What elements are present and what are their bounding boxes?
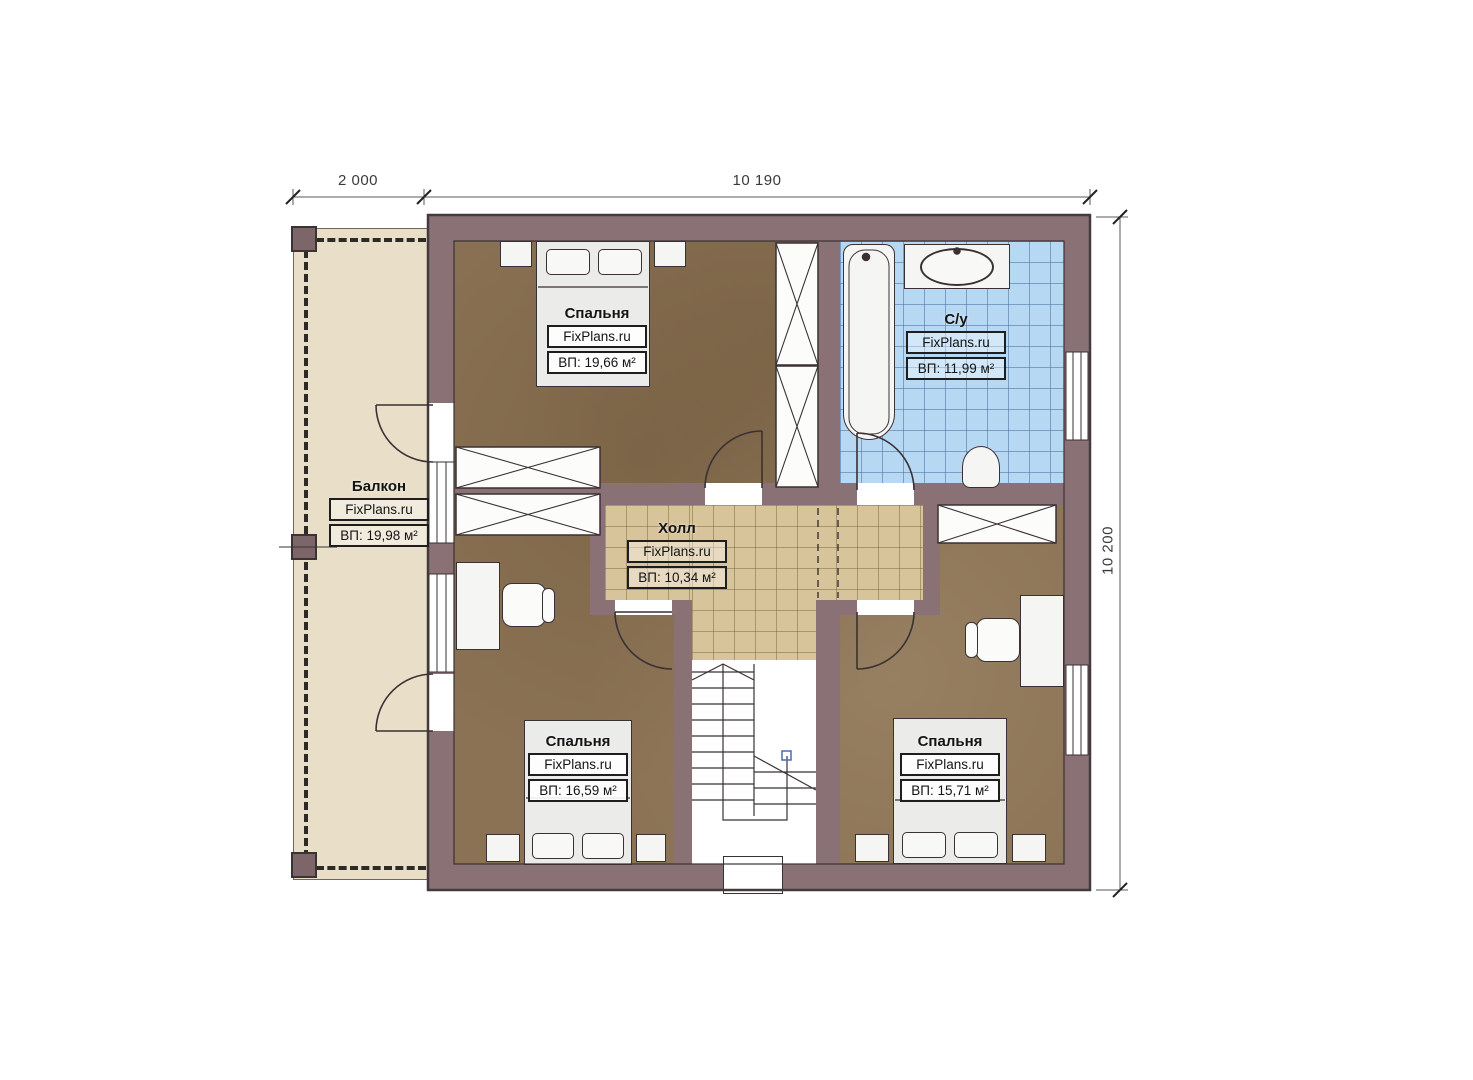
stairs [692, 664, 816, 820]
room-name: Балкон [329, 478, 429, 495]
room-name: С/у [906, 311, 1006, 328]
room-name: Спальня [900, 733, 1000, 750]
brand-watermark: FixPlans.ru [329, 498, 429, 521]
room-area: ВП: 19,98 м² [329, 524, 429, 547]
room-area: ВП: 15,71 м² [900, 779, 1000, 802]
room-name: Спальня [528, 733, 628, 750]
room-label-balcony: Балкон FixPlans.ru ВП: 19,98 м² [329, 478, 429, 547]
room-area: ВП: 10,34 м² [627, 566, 727, 589]
brand-watermark: FixPlans.ru [906, 331, 1006, 354]
room-area: ВП: 19,66 м² [547, 351, 647, 374]
brand-watermark: FixPlans.ru [547, 325, 647, 348]
closet-column-top [456, 243, 1056, 543]
brand-watermark: FixPlans.ru [627, 540, 727, 563]
room-area: ВП: 11,99 м² [906, 357, 1006, 380]
room-label-bathroom: С/у FixPlans.ru ВП: 11,99 м² [906, 311, 1006, 380]
room-label-bedroom-tl: Спальня FixPlans.ru ВП: 19,66 м² [547, 305, 647, 374]
room-label-hall: Холл FixPlans.ru ВП: 10,34 м² [627, 520, 727, 589]
room-label-bedroom-br: Спальня FixPlans.ru ВП: 15,71 м² [900, 733, 1000, 802]
room-label-bedroom-bl: Спальня FixPlans.ru ВП: 16,59 м² [528, 733, 628, 802]
room-name: Спальня [547, 305, 647, 322]
room-area: ВП: 16,59 м² [528, 779, 628, 802]
plan-linework [0, 0, 1473, 1080]
brand-watermark: FixPlans.ru [528, 753, 628, 776]
floor-plan-canvas: 2 000 10 190 10 200 Спальня FixPlans.ru … [0, 0, 1473, 1080]
brand-watermark: FixPlans.ru [900, 753, 1000, 776]
room-name: Холл [627, 520, 727, 537]
